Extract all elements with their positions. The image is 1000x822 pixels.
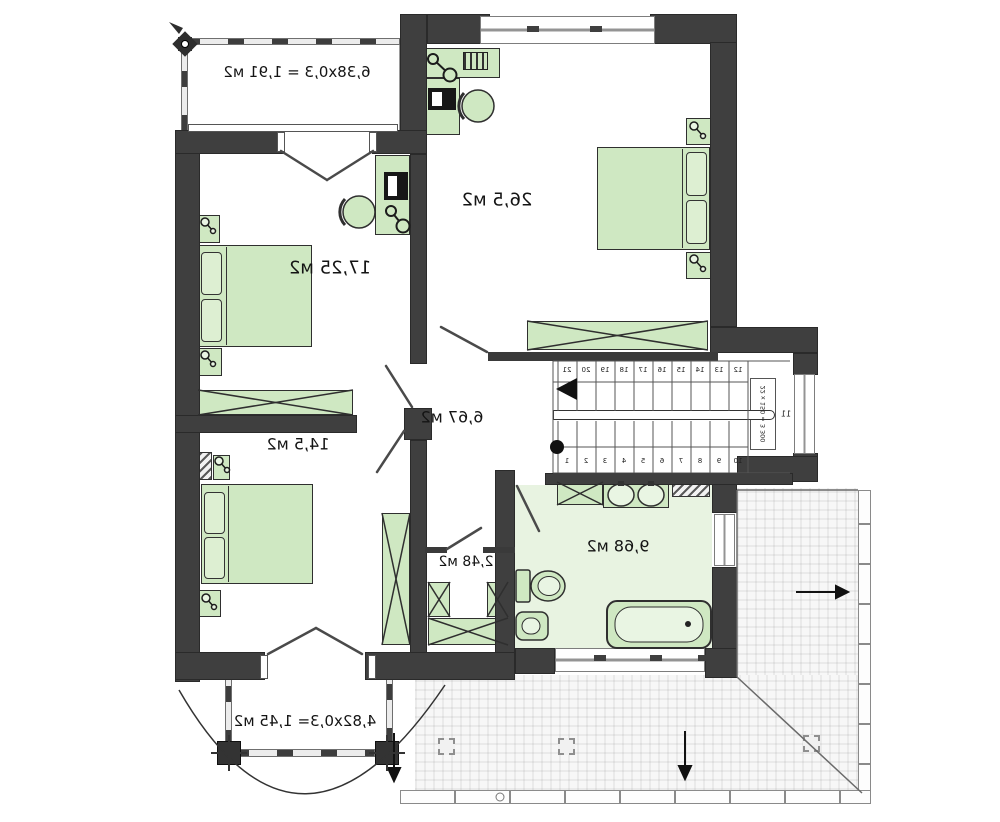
stairs-landing-number: 11 — [781, 410, 791, 419]
step-number: 21 — [563, 366, 572, 374]
step-number: 6 — [660, 457, 664, 465]
balcony-column-right — [375, 741, 399, 765]
step-number: 17 — [639, 366, 648, 374]
books-icon — [463, 52, 488, 70]
wall-bedroomleft-top-a — [175, 130, 285, 154]
wall-top-b — [650, 14, 737, 44]
step-number: 9 — [717, 457, 721, 465]
wall-stairs-top-edge — [488, 352, 718, 361]
wall-bottom-c — [515, 648, 555, 674]
roof-mark-2 — [558, 738, 575, 755]
step-number: 2 — [584, 457, 588, 465]
room-label-hallway: 6,67 м2 — [421, 408, 484, 427]
balcony-top-sill — [188, 124, 398, 132]
step-number: 12 — [734, 366, 743, 374]
pillow-1 — [686, 152, 707, 196]
pillow-5 — [204, 492, 225, 534]
closet-cabinet-left — [428, 582, 450, 617]
balcony-bottom-rail-right — [386, 675, 393, 745]
pillow-4 — [201, 299, 222, 342]
room-label-bedroom-top: 26,5 м2 — [462, 190, 533, 211]
wall-bottom-a — [175, 652, 265, 680]
wall-closet-right — [495, 470, 515, 675]
door-jamb-2 — [369, 132, 377, 152]
sink-counter — [603, 482, 669, 508]
wardrobe-top-bedroom — [527, 321, 708, 350]
closet-top-edge-a — [425, 547, 447, 553]
step-number: 3 — [603, 457, 607, 465]
balcony-top-railing-left — [181, 40, 188, 132]
room-label-bedroom-left: 17,25 м2 — [289, 258, 371, 279]
balcony-top-railing-top — [183, 38, 400, 45]
nightstand-1 — [686, 118, 712, 145]
step-number: 19 — [601, 366, 610, 374]
roof-area-bottom — [415, 675, 858, 790]
balcony-top-floor — [183, 40, 400, 132]
step-number: 7 — [679, 457, 683, 465]
wardrobe-tall — [382, 513, 410, 645]
stairs-note: 22 x 150 = 3 300 — [759, 386, 767, 443]
balcony-column-left — [217, 741, 241, 765]
wall-bathroom-right-b — [712, 567, 737, 658]
room-label-bathroom: 9,68 м2 — [587, 537, 650, 556]
step-number: 20 — [582, 366, 591, 374]
floor-plan: 6,38x0,3 = 1,91 м2 26,5 м2 17,25 м2 6,67… — [0, 0, 1000, 822]
desk-top-horizontal — [424, 48, 500, 78]
room-label-bedroom-bottom: 14,5 м2 — [267, 435, 330, 454]
bed-left-line — [226, 247, 227, 345]
window-bathroom-bottom — [555, 648, 705, 672]
window-top — [480, 16, 655, 44]
step-number: 8 — [698, 457, 702, 465]
door-jamb-3 — [260, 655, 268, 679]
wall-bathroom-right-a — [712, 482, 737, 513]
window-stairbay — [794, 374, 815, 454]
step-number: 1 — [565, 457, 569, 465]
bed-top-line — [682, 149, 683, 248]
roof-gutter-right — [858, 490, 871, 804]
wall-stairbay-top — [710, 327, 818, 353]
door-jamb-1 — [277, 132, 285, 152]
wall-left — [175, 130, 200, 682]
nightstand-2 — [686, 252, 712, 279]
wardrobe-left-bedroom — [198, 390, 353, 415]
stairs-handrail — [553, 410, 775, 420]
wall-bedroomleft-top-b — [372, 130, 427, 154]
room-label-closet: 2,48 м2 — [438, 554, 493, 570]
wall-stairbay-right-a — [793, 353, 818, 375]
pillow-3 — [201, 252, 222, 295]
roof-mark-1 — [438, 738, 455, 755]
balcony-bottom-railing — [232, 749, 375, 757]
wall-interior-horiz — [175, 415, 357, 433]
nightstand-4 — [199, 348, 222, 376]
room-label-balcony-top: 6,38x0,3 = 1,91 м2 — [223, 63, 370, 81]
bathroom-floor — [515, 485, 712, 655]
wall-bottom-b — [365, 652, 515, 680]
nightstand-5 — [213, 455, 230, 480]
step-number: 18 — [620, 366, 629, 374]
room-label-balcony-bottom: 4,82x0,3= 1,45 м2 — [234, 712, 377, 730]
step-number: 10 — [734, 457, 743, 465]
wall-interior-vert-b — [410, 440, 427, 675]
step-number: 15 — [677, 366, 686, 374]
step-number: 5 — [641, 457, 645, 465]
wall-interior-vert-a — [410, 154, 427, 364]
wall-right-bedroom — [710, 42, 737, 327]
radiator-bedroom-icon — [199, 452, 212, 480]
door-jamb-4 — [368, 655, 376, 679]
closet-top-edge-b — [483, 547, 515, 553]
wall-bottom-d — [705, 648, 737, 678]
balcony-bottom-rail-left — [225, 675, 232, 747]
monitor-icon-1 — [428, 88, 456, 110]
step-number: 16 — [658, 366, 667, 374]
nightstand-6 — [199, 590, 221, 617]
bathroom-cabinet — [557, 482, 603, 505]
window-bathroom-right — [714, 514, 735, 566]
step-number: 4 — [622, 457, 626, 465]
bed-bottom-line — [228, 486, 229, 582]
pillow-6 — [204, 537, 225, 579]
monitor-icon-2 — [384, 172, 408, 200]
step-number: 14 — [696, 366, 705, 374]
roof-mark-3 — [803, 735, 820, 752]
nightstand-3 — [199, 215, 220, 243]
roof-arc — [179, 685, 445, 794]
wall-bathroom-top — [545, 473, 793, 485]
pillow-2 — [686, 200, 707, 244]
radiator-bathroom-icon — [672, 484, 710, 497]
step-number: 13 — [715, 366, 724, 374]
roof-gutter-bottom — [400, 790, 871, 804]
